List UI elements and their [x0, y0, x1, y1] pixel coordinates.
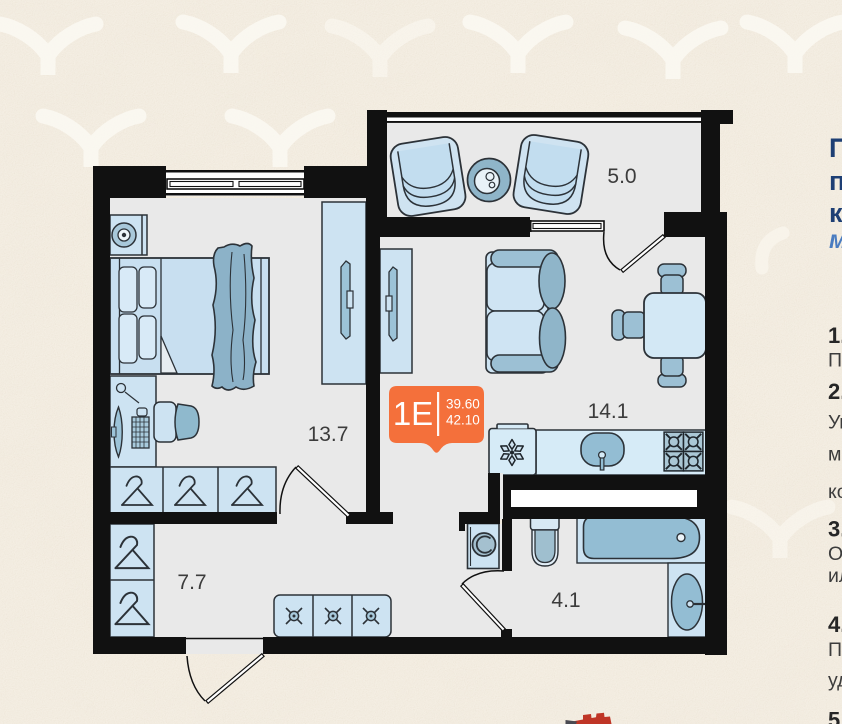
svg-text:13.7: 13.7 — [308, 423, 349, 446]
svg-text:Пл: Пл — [829, 133, 842, 163]
svg-text:По: По — [828, 639, 842, 661]
svg-text:Пр: Пр — [828, 349, 842, 371]
svg-text:4.: 4. — [828, 612, 842, 637]
svg-text:4.1: 4.1 — [551, 589, 580, 612]
svg-text:ил: ил — [828, 565, 842, 587]
svg-text:14.1: 14.1 — [588, 400, 629, 423]
svg-text:Ув: Ув — [828, 411, 842, 433]
svg-text:1.: 1. — [828, 323, 842, 348]
svg-text:ме: ме — [828, 444, 842, 466]
svg-text:39.60: 39.60 — [446, 397, 480, 412]
svg-text:1E: 1E — [393, 395, 433, 432]
svg-text:5.0: 5.0 — [607, 165, 636, 188]
svg-text:уд: уд — [828, 670, 842, 692]
svg-text:пр: пр — [829, 166, 842, 196]
svg-text:ко: ко — [828, 481, 842, 503]
svg-text:5.: 5. — [828, 708, 842, 724]
svg-text:кв: кв — [829, 198, 842, 228]
svg-text:3.: 3. — [828, 516, 842, 541]
svg-text:ме: ме — [829, 226, 842, 254]
svg-text:42.10: 42.10 — [446, 413, 480, 428]
svg-text:7.7: 7.7 — [177, 571, 206, 594]
svg-text:От: От — [828, 543, 842, 565]
svg-text:2.: 2. — [828, 379, 842, 404]
